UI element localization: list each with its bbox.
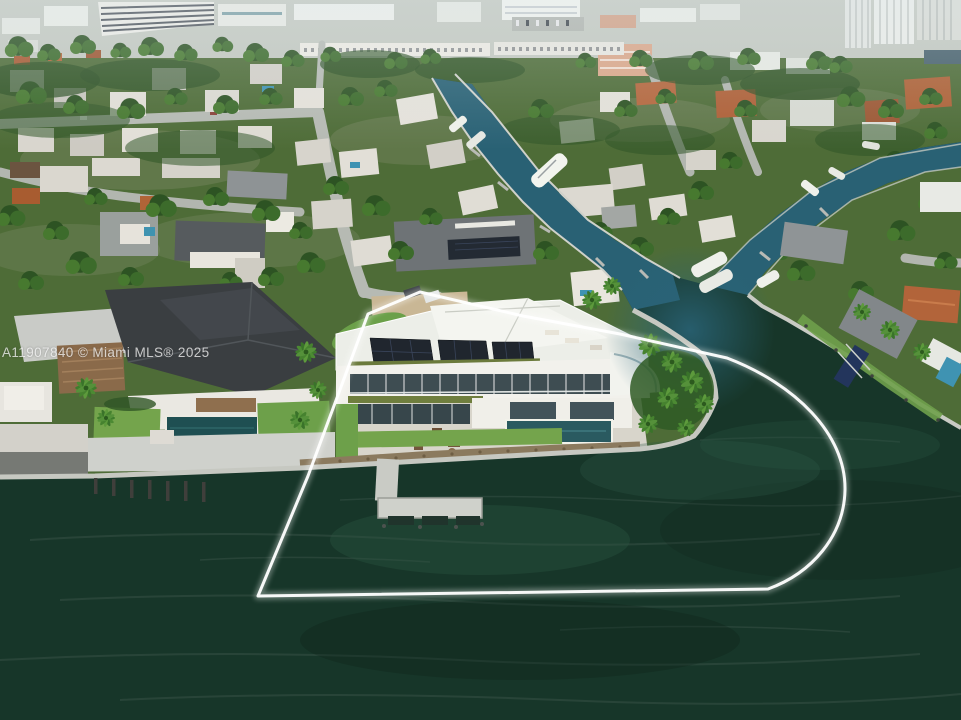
mls-watermark: A11907840 © Miami MLS® 2025 <box>2 345 210 360</box>
atmospheric-haze <box>0 0 961 150</box>
aerial-listing-photo: A11907840 © Miami MLS® 2025 <box>0 0 961 720</box>
neighbor-house-solar <box>394 214 536 271</box>
